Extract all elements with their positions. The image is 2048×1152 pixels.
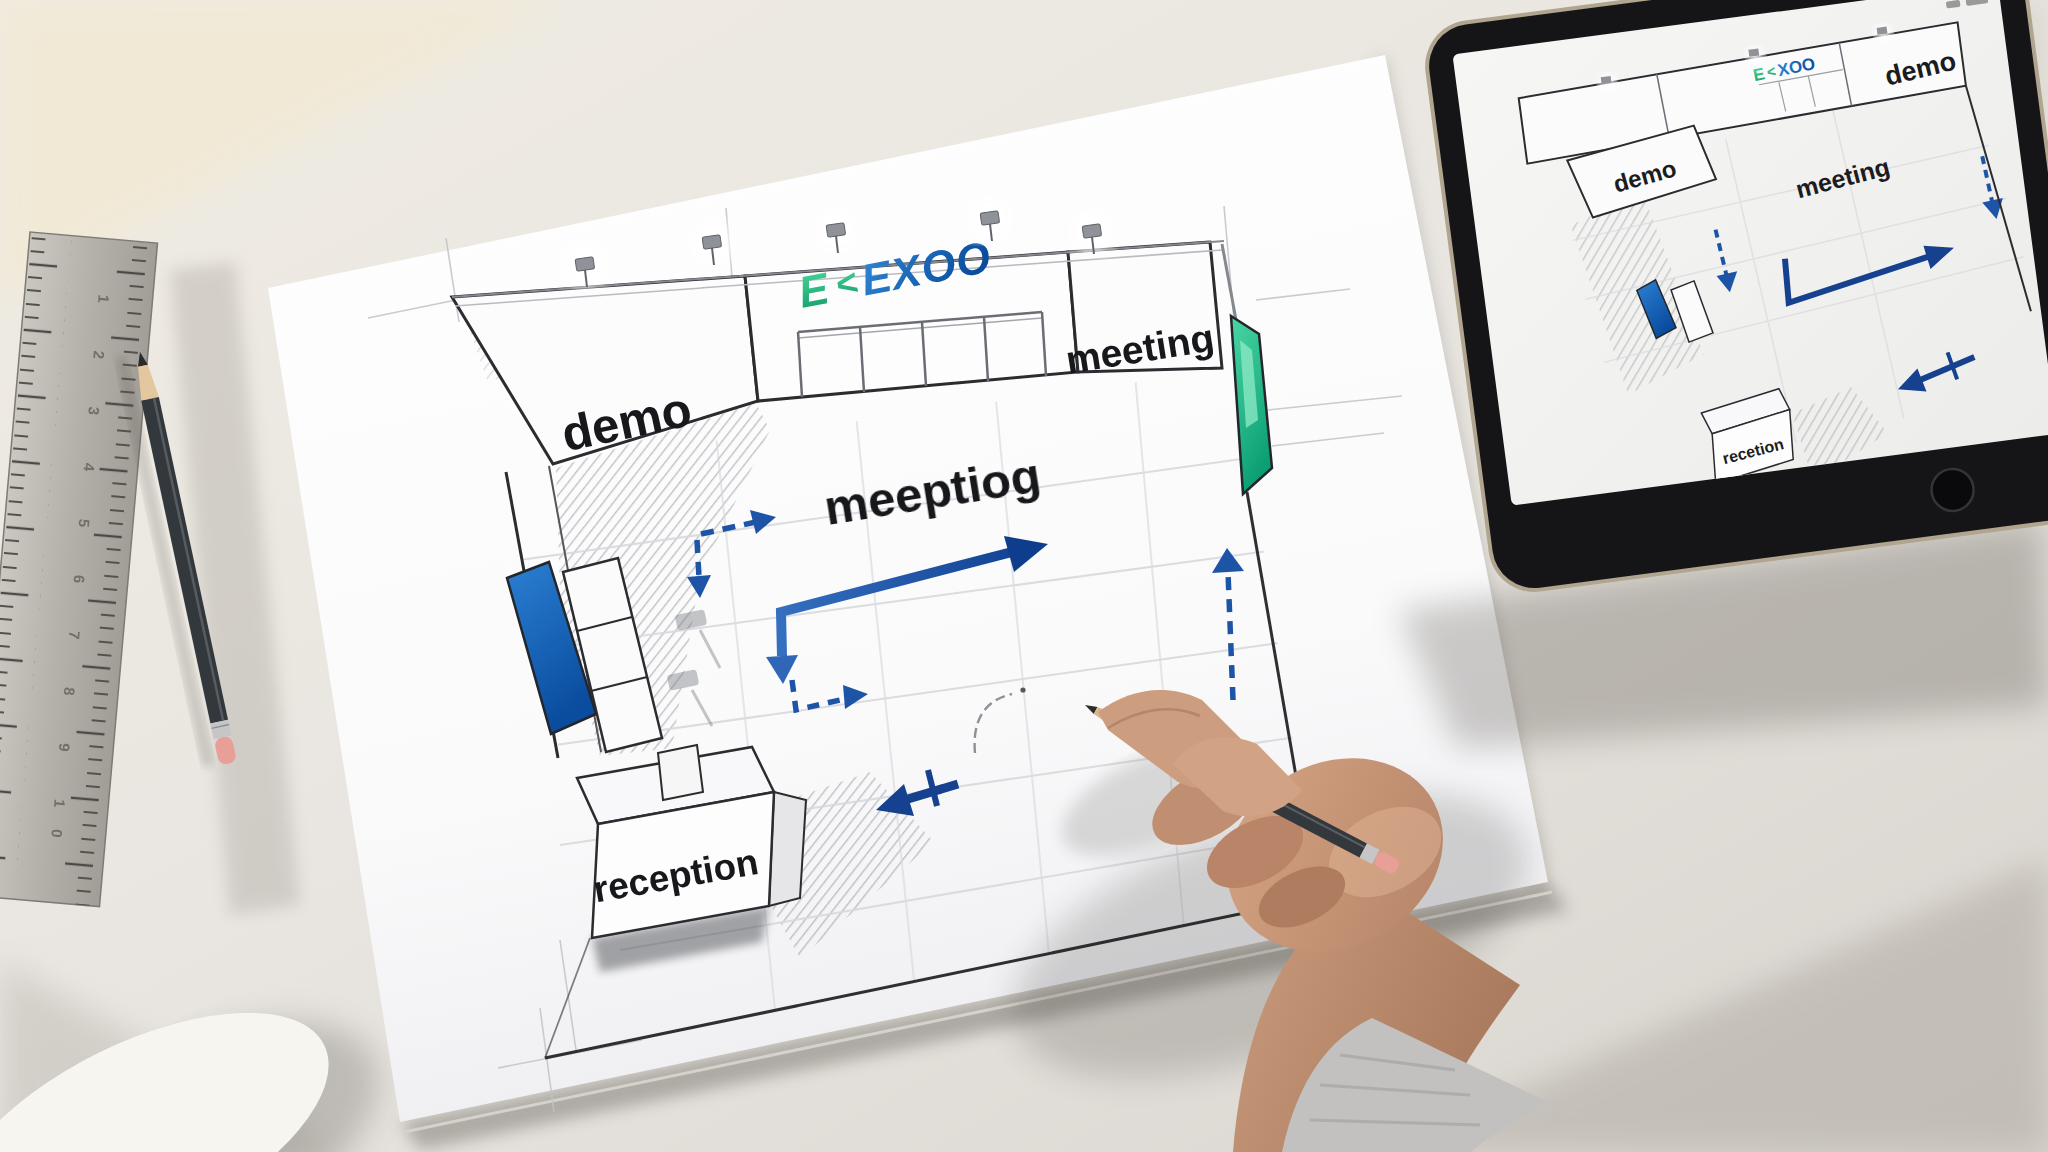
reception-desk-side: [769, 792, 806, 906]
scene-canvas: 1 2 3 4 5 6 7 8 9 10: [0, 0, 2048, 1152]
tablet: recetion E < XOO demo demo meeting: [1420, 0, 2048, 598]
desk-top-box: [658, 745, 703, 800]
desk-photo-scene: 1 2 3 4 5 6 7 8 9 10: [0, 0, 2048, 1152]
